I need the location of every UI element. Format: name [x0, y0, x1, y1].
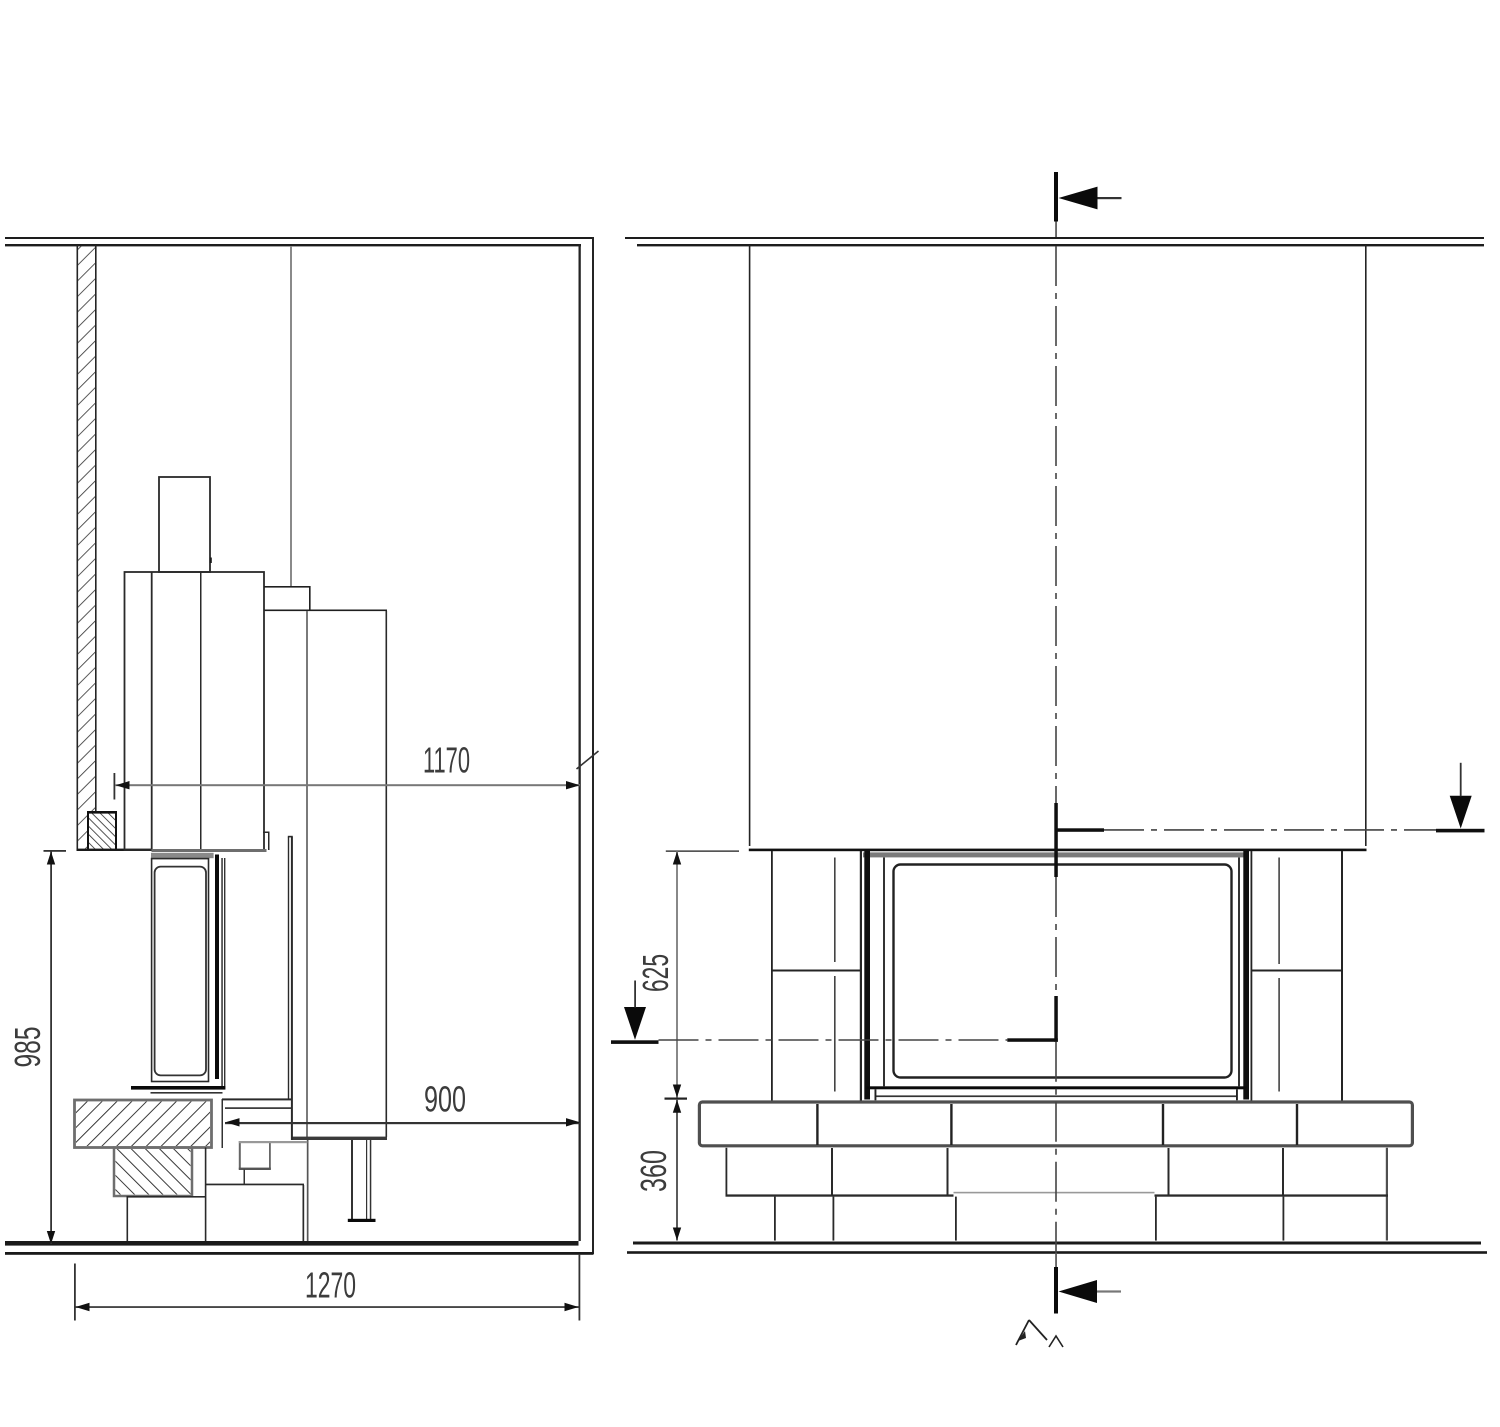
svg-text:985: 985	[7, 1027, 48, 1068]
svg-text:360: 360	[633, 1150, 674, 1192]
svg-text:1270: 1270	[305, 1265, 356, 1306]
svg-text:1170: 1170	[423, 740, 470, 781]
svg-text:625: 625	[635, 954, 676, 992]
svg-text:900: 900	[424, 1079, 466, 1120]
